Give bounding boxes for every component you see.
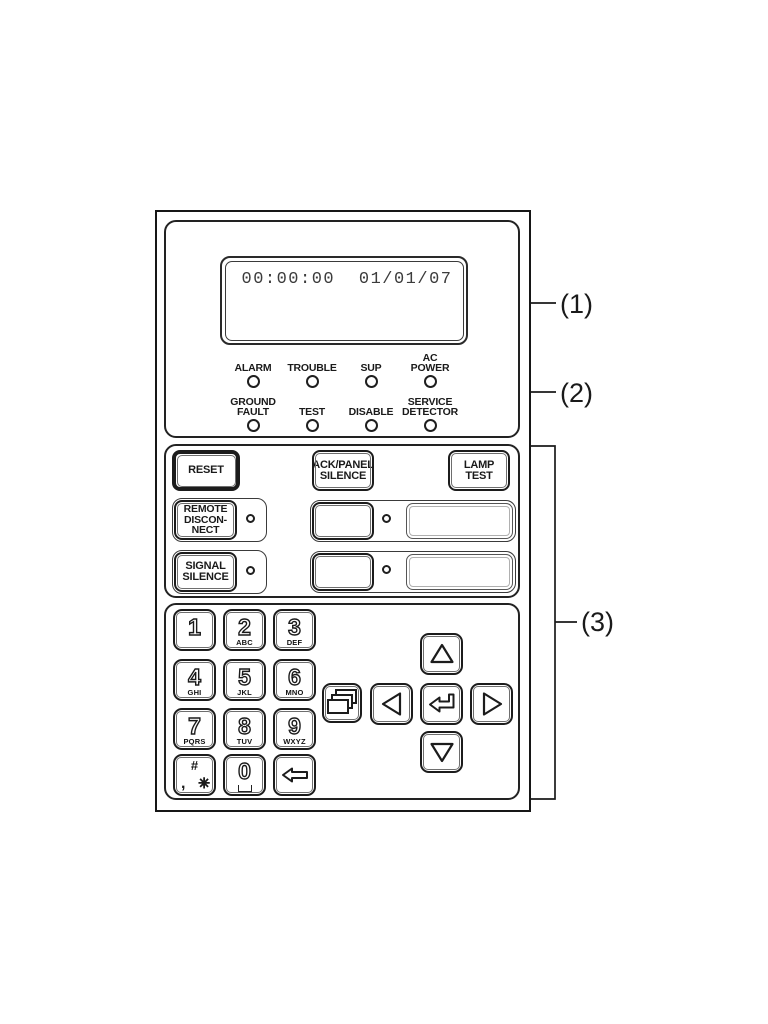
sup-led-icon [365,375,378,388]
key-letters: TUV [237,738,253,746]
key-digit: 6 [288,666,301,689]
led-label: AC POWER [411,351,450,373]
key-letters: GHI [188,689,202,697]
key-menu[interactable] [322,683,362,723]
blank-led-2-icon [382,565,391,574]
led-label: TROUBLE [287,351,336,373]
key-digit: 3 [288,616,301,639]
lcd-display: 00:00:00 01/01/07 [220,256,468,345]
key-3[interactable]: 3 DEF [273,609,316,651]
callout-2-label: (2) [560,378,593,409]
triangle-up-icon [426,638,458,670]
key-letters: JKL [237,689,252,697]
key-hash[interactable]: # , ✳ [173,754,216,796]
space-icon [238,785,252,792]
led-ac-power: AC POWER [390,351,470,388]
key-digit: 8 [238,715,251,738]
key-letters: DEF [287,639,303,647]
blank-label-window-2 [406,554,513,590]
disable-led-icon [365,419,378,432]
key-digit: 0 [238,760,251,783]
key-right[interactable] [470,683,513,725]
key-left[interactable] [370,683,413,725]
key-7[interactable]: 7 PQRS [173,708,216,750]
ac-power-led-icon [424,375,437,388]
lcd-date: 01/01/07 [359,270,453,289]
remote-disconnect-button[interactable]: REMOTE DISCON- NECT [174,500,237,540]
led-label: ALARM [235,351,272,373]
key-6[interactable]: 6 MNO [273,659,316,701]
signal-silence-led-icon [246,566,255,575]
remote-disconnect-led-icon [246,514,255,523]
key-letters: MNO [285,689,303,697]
reset-button[interactable]: RESET [172,450,240,491]
key-1[interactable]: 1 [173,609,216,651]
led-label: DISABLE [349,394,394,417]
blank-label-window-1 [406,503,513,539]
key-letters: PQRS [183,738,205,746]
key-2[interactable]: 2 ABC [223,609,266,651]
triangle-left-icon [376,688,408,720]
key-0[interactable]: 0 [223,754,266,796]
key-4[interactable]: 4 GHI [173,659,216,701]
led-label: GROUND FAULT [230,394,275,417]
key-digit: 2 [238,616,251,639]
led-service-detector: SERVICE DETECTOR [390,394,470,432]
callout-3-label: (3) [581,607,614,638]
signal-silence-button[interactable]: SIGNAL SILENCE [174,552,237,592]
led-label: TEST [299,394,325,417]
ack-panel-silence-button[interactable]: ACK/PANEL SILENCE [312,450,374,491]
led-label: SUP [361,351,382,373]
stacked-pages-icon [325,687,359,719]
star-icon: ✳ [198,776,210,790]
key-digit: 4 [188,666,201,689]
key-5[interactable]: 5 JKL [223,659,266,701]
key-letters: ABC [236,639,253,647]
hash-symbol: # [175,759,214,772]
blank-button-2[interactable] [312,553,374,591]
ground-fault-led-icon [247,419,260,432]
trouble-led-icon [306,375,319,388]
enter-arrow-icon [426,688,458,720]
blank-led-1-icon [382,514,391,523]
key-enter[interactable] [420,683,463,725]
lamp-test-button[interactable]: LAMP TEST [448,450,510,491]
key-digit: 9 [288,715,301,738]
comma-symbol: , [181,776,185,792]
lcd-display-inner: 00:00:00 01/01/07 [225,261,464,341]
blank-button-1[interactable] [312,502,374,540]
key-digit: 5 [238,666,251,689]
key-backspace[interactable] [273,754,316,796]
figure-panel-diagram: 00:00:00 01/01/07 ALARM TROUBLE SUP AC P… [0,0,768,1024]
key-digit: 7 [188,715,201,738]
lcd-time: 00:00:00 [242,270,336,289]
triangle-down-icon [426,736,458,768]
triangle-right-icon [476,688,508,720]
key-9[interactable]: 9 WXYZ [273,708,316,750]
key-letters: WXYZ [283,738,305,746]
callout-1-label: (1) [560,289,593,320]
key-digit: 1 [188,616,201,639]
test-led-icon [306,419,319,432]
key-down[interactable] [420,731,463,773]
led-label: SERVICE DETECTOR [402,394,458,417]
key-up[interactable] [420,633,463,675]
alarm-led-icon [247,375,260,388]
service-detector-led-icon [424,419,437,432]
backspace-arrow-icon [279,763,311,787]
key-8[interactable]: 8 TUV [223,708,266,750]
